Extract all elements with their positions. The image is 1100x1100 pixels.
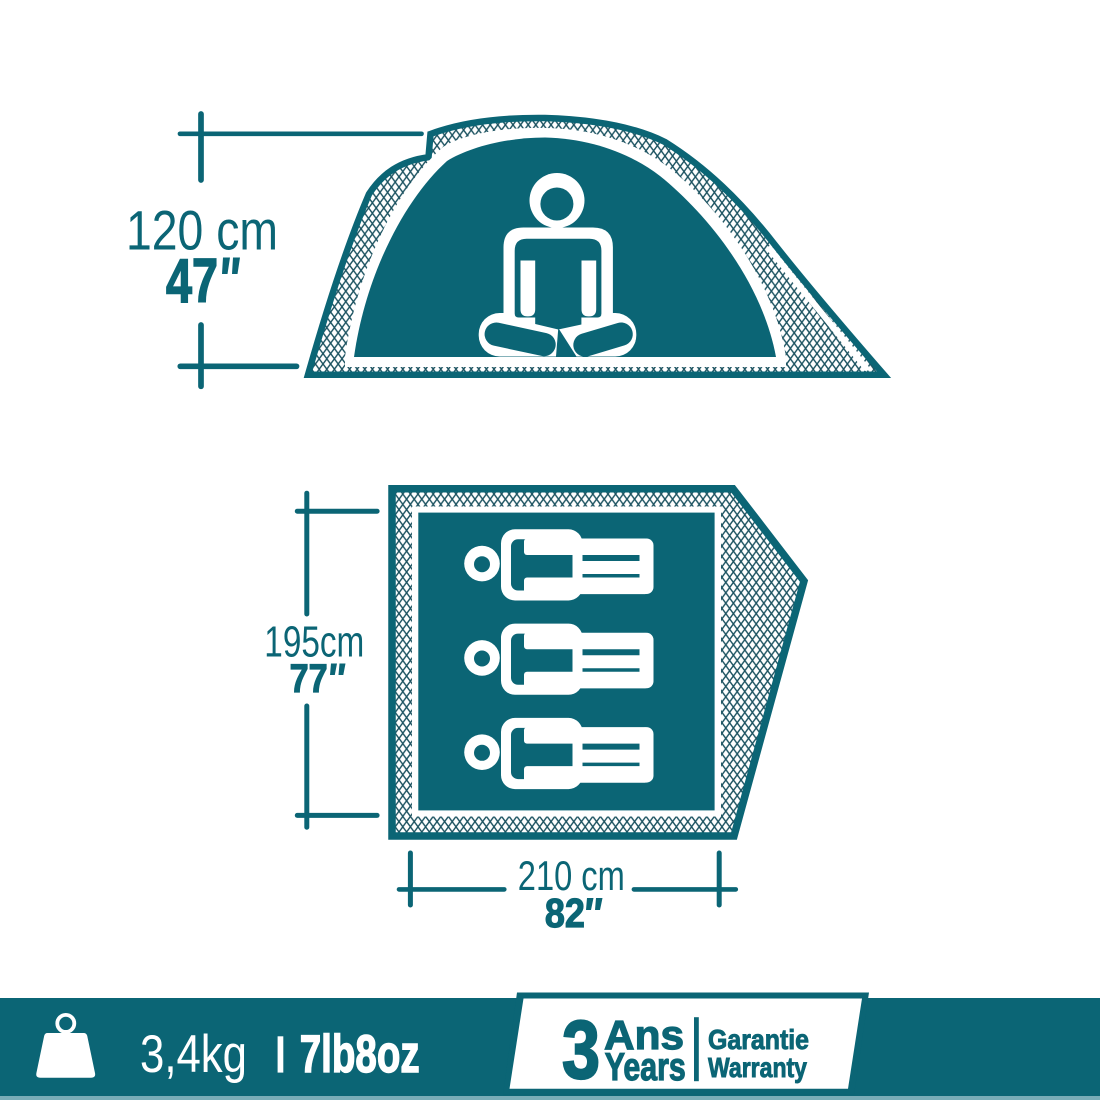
- svg-text:3,4kg: 3,4kg: [140, 1025, 247, 1084]
- svg-text:Years: Years: [605, 1046, 686, 1089]
- svg-text:Warranty: Warranty: [708, 1052, 807, 1083]
- svg-text:77: 77: [290, 657, 328, 701]
- svg-text:Garantie: Garantie: [708, 1024, 809, 1055]
- svg-text:3: 3: [562, 1003, 600, 1096]
- svg-text:7lb8oz: 7lb8oz: [300, 1025, 420, 1084]
- svg-text:82: 82: [545, 890, 585, 936]
- svg-text:47: 47: [166, 247, 218, 316]
